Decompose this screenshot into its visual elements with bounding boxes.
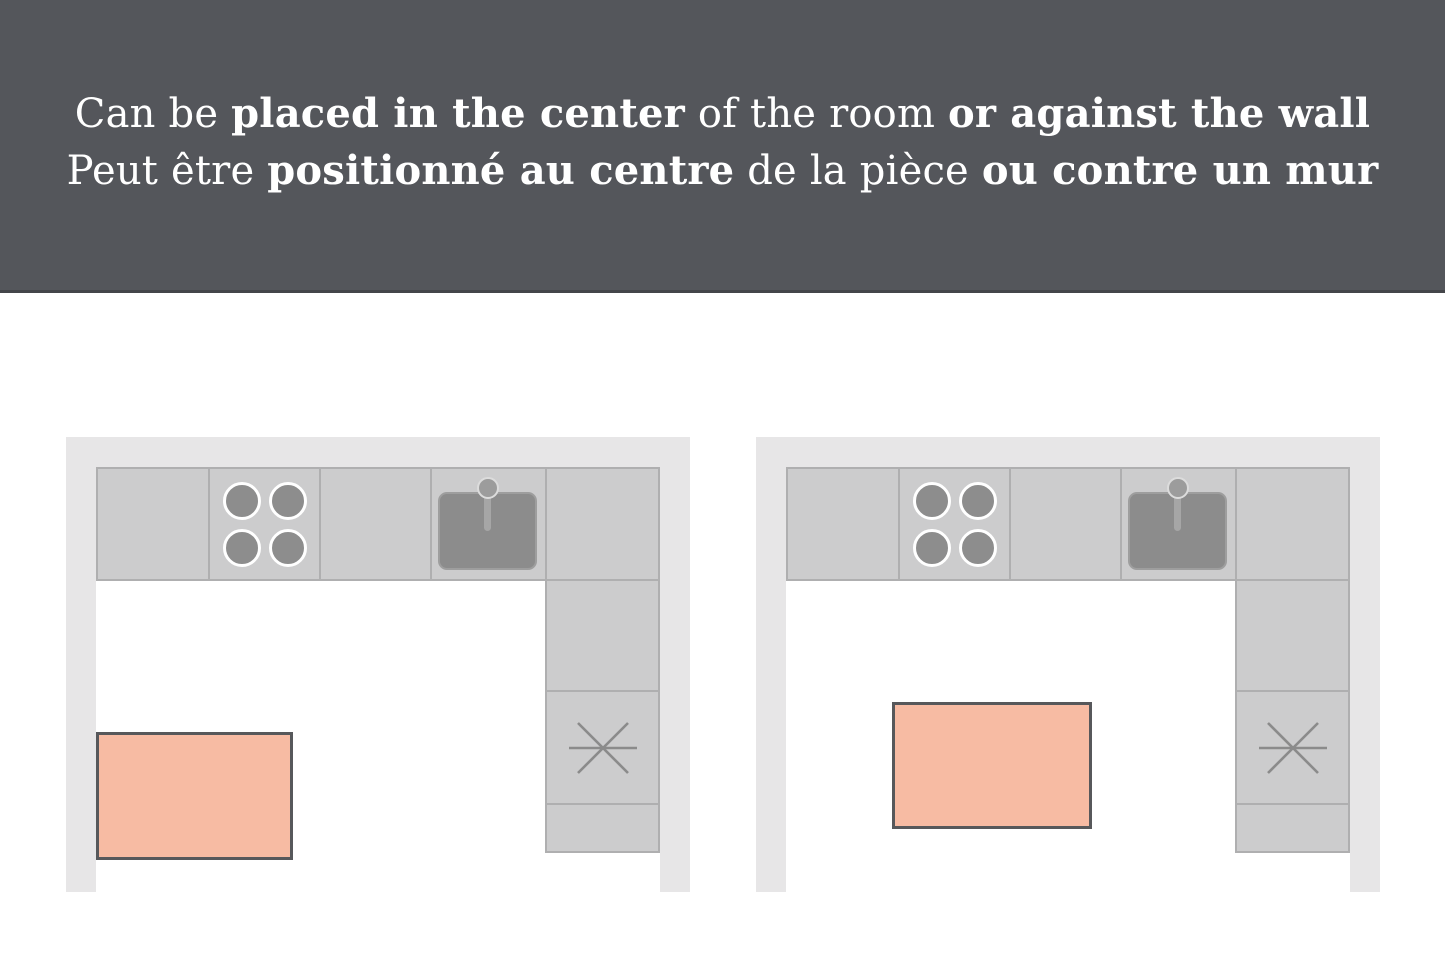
counter-row [96,467,660,581]
cabinet-cell [1009,469,1120,579]
faucet-icon [477,477,499,499]
corner-cabinet-cell [545,469,658,579]
sink-cell [430,469,545,579]
cabinet-cell [98,469,208,579]
wall-left [66,437,96,892]
burner-icon [269,482,307,520]
wall-right [660,437,690,892]
text-segment: Can be [75,91,231,137]
burner-icon [913,529,951,567]
header-line-english: Can be placed in the center of the room … [0,93,1445,135]
counter-column [545,579,660,853]
cabinet-cell [788,469,898,579]
kitchen-island [96,732,293,860]
asterisk-icon [1258,722,1328,774]
floor-plan-island-in-center [756,437,1380,892]
sink-cell [1120,469,1235,579]
burner-icon [959,482,997,520]
kitchen-island [892,702,1092,829]
asterisk-icon [568,722,638,774]
floor-plan-island-against-wall [66,437,690,892]
wall-right [1350,437,1380,892]
cabinet-cell [319,469,430,579]
small-cabinet-cell [547,803,658,851]
small-cabinet-cell [1237,803,1348,851]
cooktop-cell [208,469,319,579]
infographic-page: Can be placed in the center of the room … [0,0,1445,963]
burner-icon [223,529,261,567]
tall-cabinet-cell [547,581,658,690]
wall-left [756,437,786,892]
bold-text-segment: positionné au centre [267,147,734,194]
burner-icon [269,529,307,567]
burner-icon [223,482,261,520]
header-line-french: Peut être positionné au centre de la piè… [0,150,1445,192]
bold-text-segment: placed in the center [231,90,685,137]
tall-cabinet-cell [1237,581,1348,690]
text-segment: de la pièce [734,148,982,194]
cooktop-cell [898,469,1009,579]
wall-top [66,437,690,467]
asterisk-cabinet-cell [547,690,658,803]
cooktop-icon [913,482,997,567]
text-segment: of the room [685,91,948,137]
counter-row [786,467,1350,581]
faucet-icon [1167,477,1189,499]
burner-icon [959,529,997,567]
header-banner: Can be placed in the center of the room … [0,0,1445,293]
text-segment: Peut être [67,148,268,194]
asterisk-cabinet-cell [1237,690,1348,803]
burner-icon [913,482,951,520]
bold-text-segment: or against the wall [948,90,1370,137]
wall-top [756,437,1380,467]
cooktop-icon [223,482,307,567]
corner-cabinet-cell [1235,469,1348,579]
counter-column [1235,579,1350,853]
bold-text-segment: ou contre un mur [982,147,1379,194]
